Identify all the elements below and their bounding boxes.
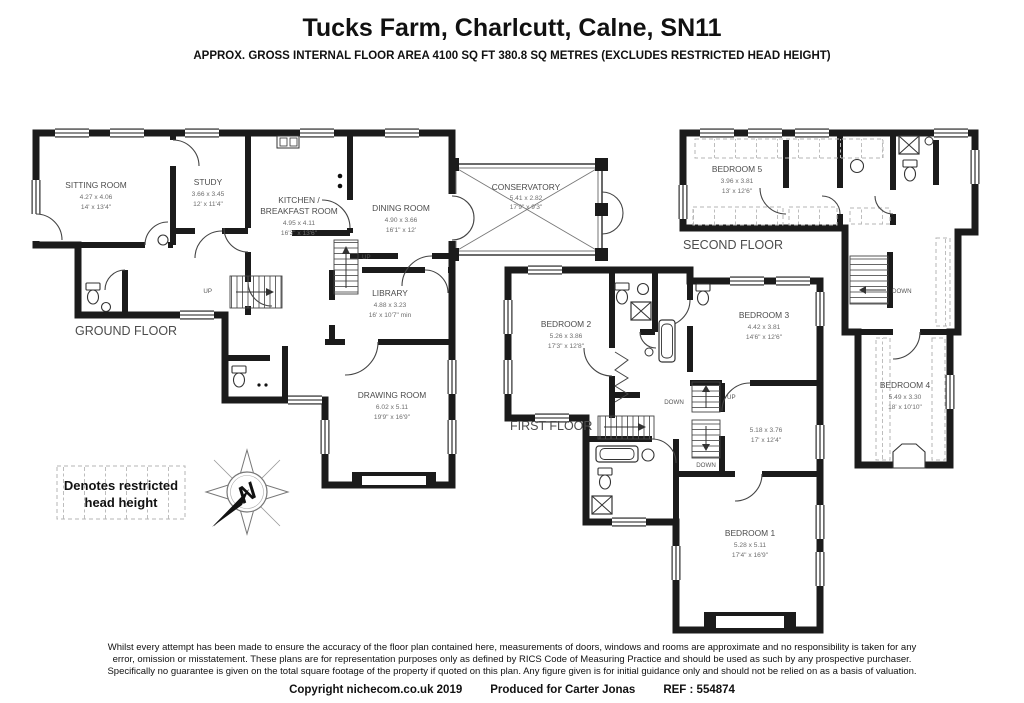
room-label-dining-room: DINING ROOM: [372, 203, 430, 213]
first-floor-main-stairs: [598, 416, 654, 439]
stair-up-label: UP: [727, 394, 736, 401]
stove-burner: [338, 174, 343, 179]
room-dim-bedroom1-metric: 5.28 x 5.11: [734, 542, 766, 549]
room-dim-bedroom4-metric: 5.49 x 3.30: [889, 394, 922, 401]
room-label-sitting-room: SITTING ROOM: [65, 180, 126, 190]
entrance-door-gap: [32, 213, 41, 241]
copyright-line: Copyright nichecom.co.uk 2019 Produced f…: [0, 684, 1024, 696]
room-dim-bedroom3-metric: 4.42 x 3.81: [748, 324, 781, 331]
bedroom4-fireplace: [893, 444, 925, 468]
room-dim-kitchen-metric: 4.95 x 4.11: [283, 220, 315, 227]
copyright-text: Copyright nichecom.co.uk 2019: [289, 684, 462, 696]
room-dim-study-imperial: 12' x 11'4": [193, 201, 223, 208]
room-dim-kitchen-imperial: 16'3" x 13'6": [281, 230, 318, 237]
first-floor-plan: BEDROOM 2 5.26 x 3.86 17'3" x 12'8" BEDR…: [504, 266, 825, 631]
conservatory-door-gap: [448, 194, 457, 241]
room-dim-bedroom5-metric: 3.96 x 3.81: [721, 178, 754, 185]
second-floor-stairs: [850, 256, 888, 304]
stair-down-label: DOWN: [892, 288, 912, 295]
room-label-study: STUDY: [194, 177, 223, 187]
produced-for-text: Produced for Carter Jonas: [490, 684, 635, 696]
floorplan-page: Tucks Farm, Charlcutt, Calne, SN11 APPRO…: [0, 0, 1024, 703]
room-label-bedroom1: BEDROOM 1: [725, 528, 776, 538]
room-dim-conservatory-imperial: 17'9" x 9'3": [510, 204, 543, 211]
room-dim-drawing-imperial: 19'9" x 16'9": [374, 414, 411, 421]
room-label-drawing-room: DRAWING ROOM: [358, 390, 427, 400]
room-dim-bedroom4-imperial: 18' x 10'10": [888, 404, 922, 411]
stair-down-label: DOWN: [696, 462, 716, 469]
legend-line2: head height: [85, 495, 159, 510]
room-label-bedroom4: BEDROOM 4: [880, 380, 931, 390]
room-label-bedroom5: BEDROOM 5: [712, 164, 763, 174]
disclaimer-line-1: Whilst every attempt has been made to en…: [0, 642, 1024, 654]
room-dim-dining-imperial: 16'1" x 12': [386, 227, 416, 234]
compass-rose: N: [206, 450, 288, 534]
reference-number: REF : 554874: [663, 684, 735, 696]
ground-floor-label: GROUND FLOOR: [75, 324, 177, 338]
ground-floor-main-stairs: [230, 276, 282, 308]
room-dim-bedroom5-imperial: 13' x 12'6": [722, 188, 753, 195]
room-dim-landing-imperial: 17' x 12'4": [751, 437, 782, 444]
room-label-bedroom2: BEDROOM 2: [541, 319, 592, 329]
stove-burner: [338, 184, 343, 189]
second-floor-label: SECOND FLOOR: [683, 238, 783, 252]
room-dim-bedroom3-imperial: 14'6" x 12'6": [746, 334, 783, 341]
restricted-head-height-legend: Denotes restricted head height: [57, 466, 185, 519]
room-label-kitchen-line1: KITCHEN /: [278, 195, 320, 205]
room-label-conservatory: CONSERVATORY: [492, 182, 561, 192]
room-dim-landing-metric: 5.18 x 3.76: [750, 427, 783, 434]
stair-up-label: UP: [203, 288, 212, 295]
room-dim-conservatory-metric: 5.41 x 2.82: [510, 195, 543, 202]
room-dim-bedroom2-metric: 5.26 x 3.86: [550, 333, 583, 340]
room-dim-sitting-metric: 4.27 x 4.06: [80, 194, 113, 201]
stair-down-label: DOWN: [664, 399, 684, 406]
room-label-kitchen-line2: BREAKFAST ROOM: [260, 206, 338, 216]
room-dim-study-metric: 3.66 x 3.45: [192, 191, 225, 198]
room-dim-sitting-imperial: 14' x 13'4": [81, 204, 112, 211]
floorplan-canvas: SITTING ROOM 4.27 x 4.06 14' x 13'4" STU…: [0, 0, 1024, 703]
ground-floor-secondary-stairs: [334, 240, 358, 294]
room-dim-library-metric: 4.88 x 3.23: [374, 302, 407, 309]
room-dim-library-imperial: 16' x 10'7" min: [369, 312, 412, 319]
stair-up-label: UP: [362, 254, 371, 261]
first-floor-down-stairs: [692, 420, 720, 458]
room-label-library: LIBRARY: [372, 288, 408, 298]
first-floor-label: FIRST FLOOR: [510, 419, 592, 433]
room-label-bedroom3: BEDROOM 3: [739, 310, 790, 320]
room-dim-drawing-metric: 6.02 x 5.11: [376, 404, 408, 411]
room-dim-bedroom1-imperial: 17'4" x 16'9": [732, 552, 769, 559]
disclaimer-line-3: Specifically no guarantee is given on th…: [0, 666, 1024, 678]
first-floor-up-stairs: [692, 382, 720, 412]
bedroom1-fireplace-opening: [716, 616, 784, 628]
drawing-room-fireplace-opening: [362, 476, 426, 485]
room-dim-bedroom2-imperial: 17'3" x 12'8": [548, 343, 585, 350]
kitchen-sink: [277, 136, 299, 148]
legend-line1: Denotes restricted: [64, 478, 178, 493]
room-dim-dining-metric: 4.90 x 3.66: [385, 217, 418, 224]
disclaimer-line-2: error, omission or misstatement. These p…: [0, 654, 1024, 666]
